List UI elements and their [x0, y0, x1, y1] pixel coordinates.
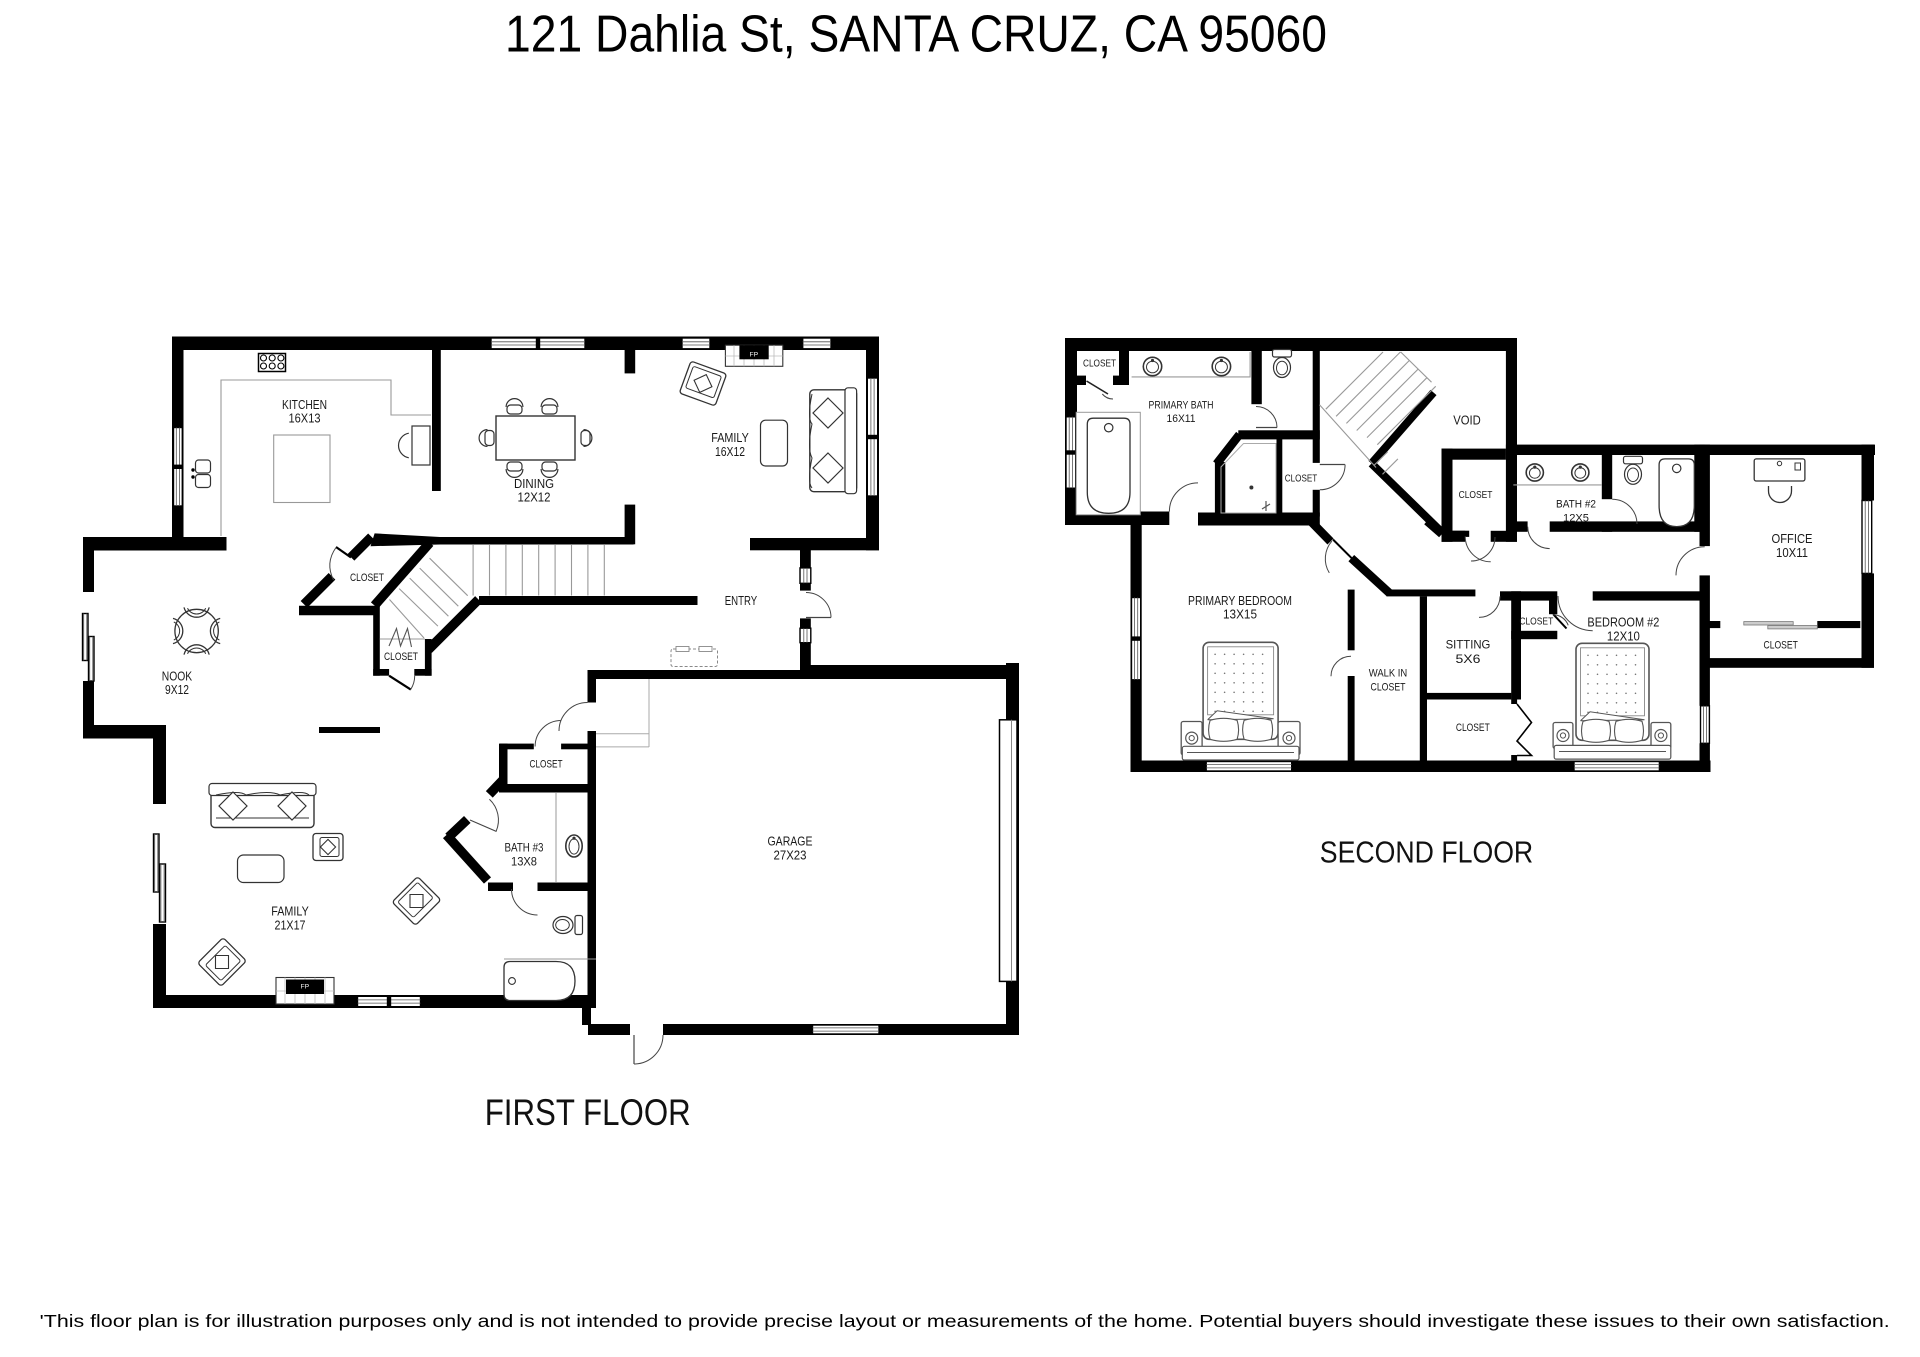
svg-text:OFFICE: OFFICE — [1772, 532, 1813, 546]
svg-text:CLOSET: CLOSET — [1456, 722, 1490, 734]
svg-text:13X15: 13X15 — [1223, 607, 1257, 621]
svg-text:10X11: 10X11 — [1776, 546, 1808, 560]
svg-text:PRIMARY BEDROOM: PRIMARY BEDROOM — [1188, 594, 1292, 608]
svg-text:BATH #3: BATH #3 — [505, 842, 544, 855]
svg-text:GARAGE: GARAGE — [768, 835, 813, 849]
svg-text:FP: FP — [750, 351, 759, 358]
svg-text:SITTING: SITTING — [1446, 638, 1491, 652]
svg-text:FP: FP — [301, 984, 310, 991]
svg-text:WALK IN: WALK IN — [1369, 668, 1408, 680]
svg-text:CLOSET: CLOSET — [384, 651, 418, 663]
svg-text:16X13: 16X13 — [289, 412, 321, 426]
svg-text:ENTRY: ENTRY — [725, 594, 758, 608]
svg-text:21X17: 21X17 — [275, 919, 306, 933]
svg-text:CLOSET: CLOSET — [350, 572, 384, 584]
svg-text:FAMILY: FAMILY — [711, 431, 749, 445]
svg-text:CLOSET: CLOSET — [1764, 640, 1799, 652]
svg-text:PRIMARY BATH: PRIMARY BATH — [1149, 400, 1214, 412]
svg-text:'This floor plan is for illust: 'This floor plan is for illustration pur… — [40, 1311, 1890, 1331]
svg-text:DINING: DINING — [514, 477, 554, 491]
svg-text:SECOND FLOOR: SECOND FLOOR — [1320, 835, 1533, 869]
svg-text:16X12: 16X12 — [715, 445, 745, 459]
svg-text:27X23: 27X23 — [774, 849, 807, 863]
svg-text:9X12: 9X12 — [165, 683, 189, 697]
svg-text:BEDROOM #2: BEDROOM #2 — [1587, 616, 1659, 630]
svg-text:121 Dahlia St, SANTA CRUZ, CA: 121 Dahlia St, SANTA CRUZ, CA 95060 — [505, 6, 1327, 64]
svg-text:CLOSET: CLOSET — [1083, 359, 1116, 370]
svg-text:CLOSET: CLOSET — [1371, 682, 1406, 694]
svg-text:KITCHEN: KITCHEN — [282, 398, 327, 412]
svg-text:12X12: 12X12 — [518, 491, 551, 505]
svg-text:16X11: 16X11 — [1167, 413, 1196, 425]
svg-text:FAMILY: FAMILY — [271, 905, 309, 919]
svg-text:CLOSET: CLOSET — [1519, 616, 1553, 627]
svg-text:CLOSET: CLOSET — [530, 759, 563, 771]
svg-text:FIRST FLOOR: FIRST FLOOR — [485, 1091, 691, 1133]
svg-text:CLOSET: CLOSET — [1459, 490, 1493, 501]
svg-text:13X8: 13X8 — [511, 855, 537, 868]
svg-text:5X6: 5X6 — [1456, 652, 1481, 666]
svg-text:12X10: 12X10 — [1607, 630, 1640, 644]
svg-text:NOOK: NOOK — [162, 670, 193, 684]
svg-text:CLOSET: CLOSET — [1285, 474, 1318, 485]
svg-text:BATH #2: BATH #2 — [1556, 499, 1596, 511]
svg-text:12X5: 12X5 — [1563, 513, 1589, 525]
svg-text:VOID: VOID — [1453, 413, 1481, 428]
